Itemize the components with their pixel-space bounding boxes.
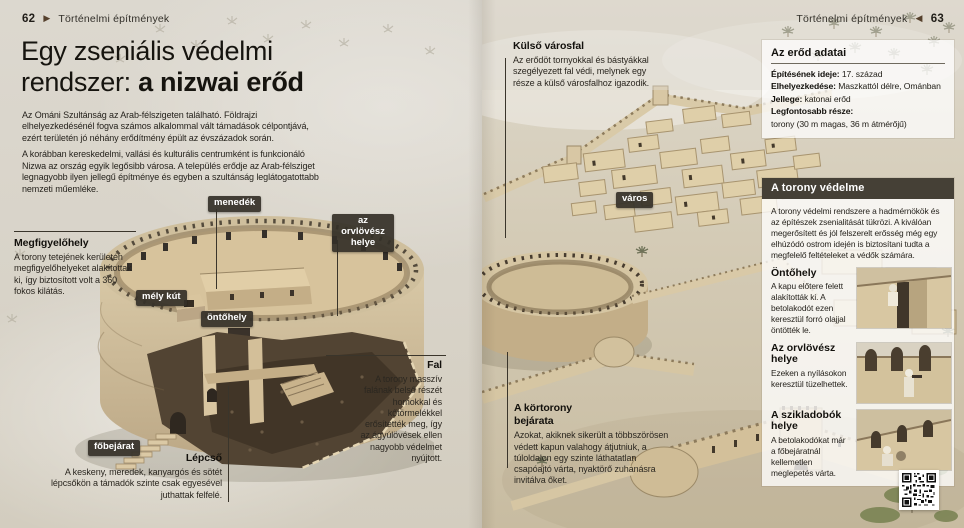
section-title: Történelmi építmények: [796, 13, 907, 25]
annotation-title: A körtorony bejárata: [514, 402, 598, 428]
badge-varos: város: [616, 192, 653, 208]
fact-value: torony (30 m magas, 36 m átmérőjű): [771, 119, 907, 129]
title-line1: Egy zseniális védelmi: [21, 36, 273, 66]
fact-label: Legfontosabb része:: [771, 105, 945, 117]
defense-section-title: Az orvlövész helye: [771, 343, 851, 366]
magazine-spread: 62 ▶ Történelmi építmények Történelmi ép…: [0, 0, 964, 528]
badge-mely-kut: mély kút: [136, 290, 187, 306]
arrow-left-icon: ◀: [916, 13, 923, 23]
leader-fal: [326, 355, 446, 356]
badge-orvlovesz: az orvlövész helye: [332, 214, 394, 252]
fact-label: Elhelyezkedése:: [771, 81, 836, 91]
defense-section-body: A kapu előtere felett alakították ki. A …: [771, 281, 851, 336]
fact-box-title: Az erőd adatai: [771, 47, 945, 64]
defense-panel-intro: A torony védelmi rendszere a hadmérnökök…: [771, 206, 945, 261]
defense-section-text: Öntőhely A kapu előtere felett alakított…: [771, 268, 851, 336]
defense-section-body: Ezeken a nyílásokon keresztül tüzelhette…: [771, 368, 851, 390]
fact-row: Jellege: katonai erőd: [771, 93, 945, 105]
annotation-body: Az erődöt tornyokkal és bástyákkal szegé…: [513, 55, 665, 89]
title-line2-regular: rendszer:: [21, 67, 138, 97]
ontohely-photo: [857, 268, 951, 328]
arrow-right-icon: ▶: [43, 13, 50, 23]
leader-lepcso: [228, 386, 229, 502]
defense-section-text: A szikladobók helye A betolakodókat már …: [771, 410, 851, 479]
szikladobok-photo: [857, 410, 951, 470]
leader-menedek: [216, 209, 217, 289]
intro-paragraph-2: A korábban kereskedelmi, vallási és kult…: [22, 149, 328, 195]
defense-section-text: Az orvlövész helye Ezeken a nyílásokon k…: [771, 343, 851, 403]
annotation-lepcso: Lépcső A keskeny, meredek, kanyargós és …: [40, 452, 222, 501]
fact-value: 17. század: [842, 69, 883, 79]
annotation-body: A torony tetejének kerületén megfigyelőh…: [14, 252, 136, 297]
leader-kulso-varosfal: [505, 58, 506, 238]
annotation-title: Külső városfal: [513, 40, 665, 53]
running-head-left: 62 ▶ Történelmi építmények: [22, 13, 169, 25]
running-head-right: Történelmi építmények ◀ 63: [796, 13, 944, 25]
defense-section-title: A szikladobók helye: [771, 410, 851, 433]
annotation-fal: Fal A torony masszív falának belső részé…: [354, 359, 442, 464]
defense-section-szikladobok: A szikladobók helye A betolakodókat már …: [771, 410, 945, 479]
annotation-megfigyelohely: Megfigyelőhely A torony tetejének kerüle…: [14, 231, 136, 297]
defense-section-body: A betolakodókat már a főbejáratnál kelle…: [771, 435, 851, 479]
annotation-kulso-varosfal: Külső városfal Az erődöt tornyokkal és b…: [513, 40, 665, 89]
defense-panel: A torony védelme A torony védelmi rendsz…: [762, 178, 954, 486]
defense-section-ontohely: Öntőhely A kapu előtere felett alakított…: [771, 268, 945, 336]
badge-menedek: menedék: [208, 196, 261, 212]
annotation-title: Lépcső: [40, 452, 222, 465]
article-title: Egy zseniális védelmi rendszer: a nizwai…: [21, 36, 341, 98]
qr-code: [899, 470, 939, 510]
defense-section-title: Öntőhely: [771, 268, 851, 280]
annotation-body: Azokat, akiknek sikerült a többszörösen …: [514, 430, 672, 486]
orvlovesz-photo: [857, 343, 951, 403]
defense-panel-body: A torony védelmi rendszere a hadmérnökök…: [762, 199, 954, 486]
defense-panel-header: A torony védelme: [762, 178, 954, 199]
page-number-right: 63: [931, 13, 944, 25]
fact-label: Építésének ideje:: [771, 69, 840, 79]
badge-ontohely: öntőhely: [201, 311, 253, 327]
fact-value: katonai erőd: [805, 94, 851, 104]
fact-row: Építésének ideje: 17. század: [771, 68, 945, 80]
fact-box: Az erőd adatai Építésének ideje: 17. szá…: [762, 40, 954, 138]
fact-value: Maszkattól délre, Ománban: [838, 81, 941, 91]
annotation-body: A torony masszív falának belső részét ho…: [354, 374, 442, 464]
annotation-title: Megfigyelőhely: [14, 237, 136, 250]
fact-row: Legfontosabb része: torony (30 m magas, …: [771, 105, 945, 130]
fact-row: Elhelyezkedése: Maszkattól délre, Ománba…: [771, 80, 945, 92]
intro-text: Az Ománi Szultánság az Arab-félszigeten …: [22, 110, 328, 200]
defense-section-orvlovesz: Az orvlövész helye Ezeken a nyílásokon k…: [771, 343, 945, 403]
annotation-kortorony: A körtorony bejárata Azokat, akiknek sik…: [514, 402, 672, 487]
title-line2-bold: a nizwai erőd: [138, 67, 304, 97]
intro-paragraph-1: Az Ománi Szultánság az Arab-félszigeten …: [22, 110, 328, 144]
annotation-title: Fal: [354, 359, 442, 372]
section-title: Történelmi építmények: [58, 13, 169, 25]
annotation-body: A keskeny, meredek, kanyargós és sötét l…: [40, 467, 222, 501]
leader-kortorony: [507, 352, 508, 468]
page-number-left: 62: [22, 13, 35, 25]
fact-label: Jellege:: [771, 94, 802, 104]
